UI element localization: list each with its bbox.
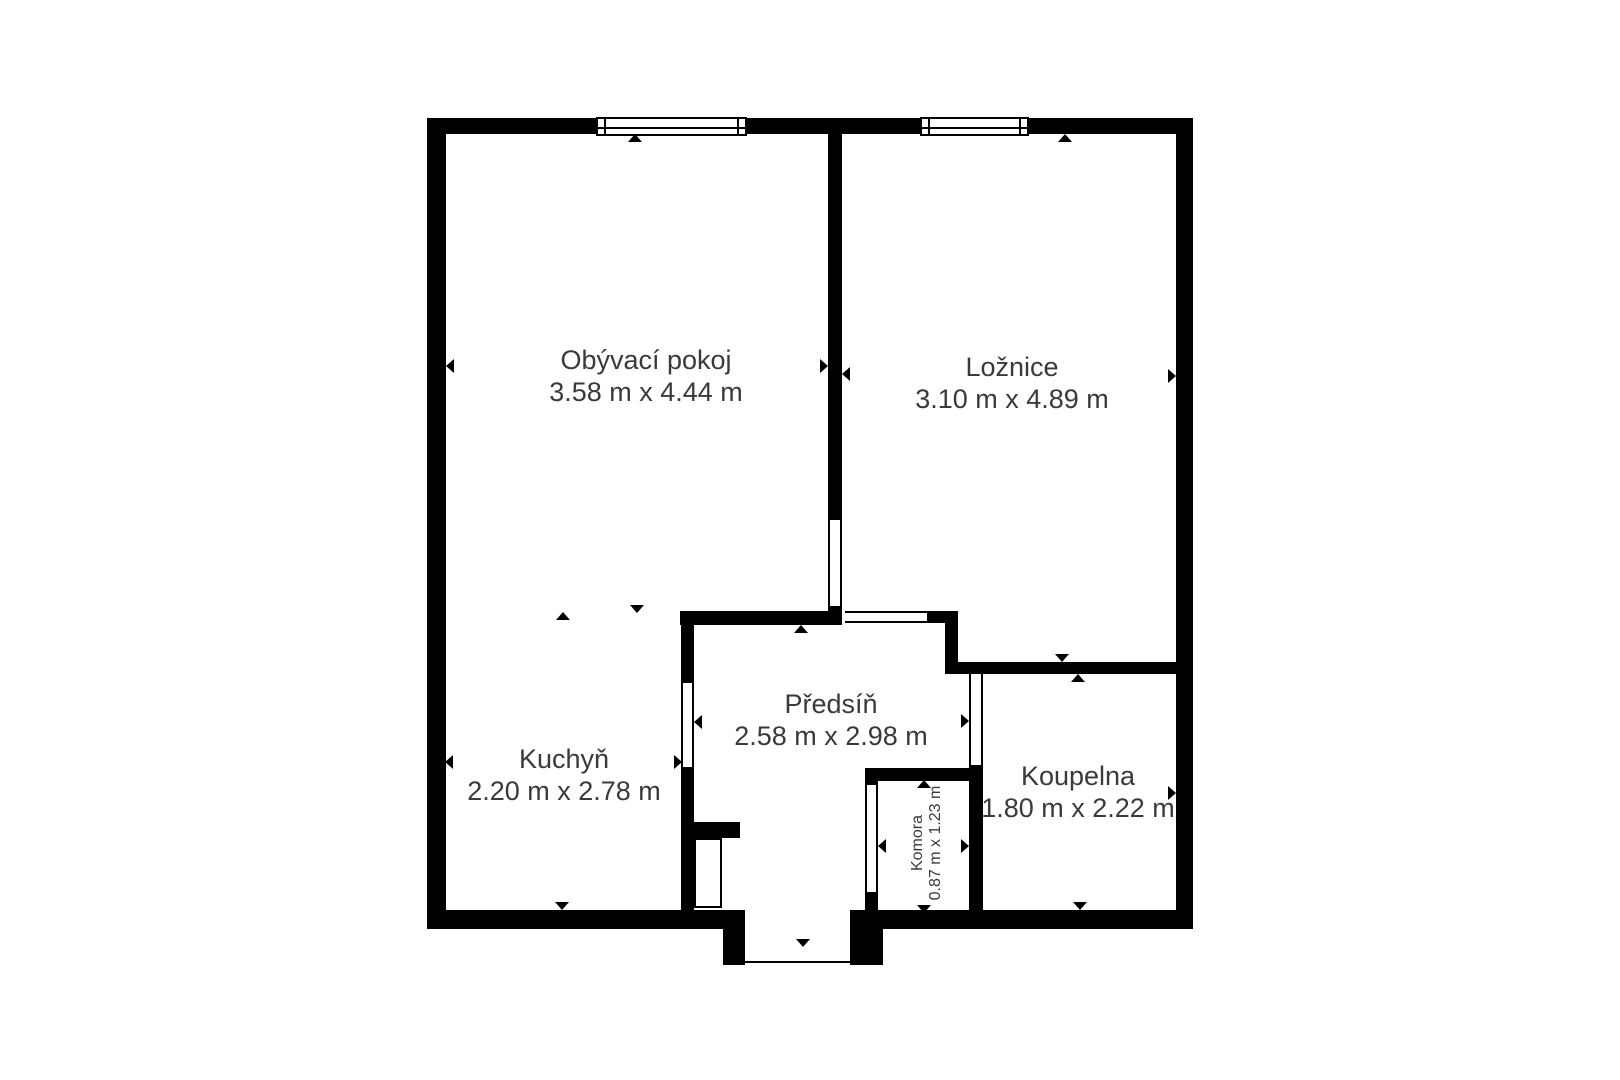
window-frame-cap bbox=[928, 119, 930, 134]
wall-right bbox=[1176, 118, 1193, 929]
wall-kitchen-stub bbox=[681, 822, 740, 838]
window-pane-line bbox=[598, 127, 745, 129]
direction-marker-icon bbox=[820, 359, 828, 373]
room-dimensions: 1.80 m x 2.22 m bbox=[981, 792, 1175, 824]
door-living-bedroom bbox=[828, 520, 842, 606]
door-bathroom bbox=[969, 674, 983, 765]
direction-marker-icon bbox=[1055, 654, 1069, 662]
room-name: Obývací pokoj bbox=[560, 345, 731, 375]
wall-top-right bbox=[1029, 118, 1193, 134]
direction-marker-icon bbox=[842, 367, 850, 381]
room-name: Kuchyň bbox=[519, 744, 609, 774]
wall-hall-left-upper bbox=[681, 611, 694, 683]
room-label-kuchyn: Kuchyň 2.20 m x 2.78 m bbox=[467, 743, 661, 807]
wall-top-left bbox=[427, 118, 596, 134]
door-hall-bedroom bbox=[845, 611, 927, 623]
direction-marker-icon bbox=[917, 905, 931, 913]
direction-marker-icon bbox=[630, 605, 644, 613]
direction-marker-icon bbox=[556, 612, 570, 620]
door-kitchen-hall bbox=[681, 683, 694, 767]
room-label-obyvaci-pokoj: Obývací pokoj 3.58 m x 4.44 m bbox=[549, 344, 743, 408]
room-label-predsin: Předsíň 2.58 m x 2.98 m bbox=[734, 688, 928, 752]
entrance-stub-left bbox=[723, 910, 745, 965]
direction-marker-icon bbox=[628, 134, 642, 142]
door-closet bbox=[865, 785, 878, 892]
room-dimensions: 3.58 m x 4.44 m bbox=[549, 376, 743, 408]
floor-plan: Obývací pokoj 3.58 m x 4.44 m Ložnice 3.… bbox=[0, 0, 1620, 1080]
window-pane-line bbox=[922, 127, 1027, 129]
room-dimensions: 2.20 m x 2.78 m bbox=[467, 775, 661, 807]
wall-closet-left-upper bbox=[865, 768, 878, 785]
direction-marker-icon bbox=[445, 755, 453, 769]
direction-marker-icon bbox=[794, 625, 808, 633]
direction-marker-icon bbox=[694, 715, 702, 729]
room-dimensions: 2.58 m x 2.98 m bbox=[734, 720, 928, 752]
room-name: Předsíň bbox=[784, 689, 877, 719]
window-frame-cap bbox=[604, 119, 606, 134]
room-dimensions: 3.10 m x 4.89 m bbox=[915, 383, 1109, 415]
entrance-stub-right bbox=[850, 910, 883, 965]
wall-living-bedroom-stub bbox=[828, 606, 842, 625]
direction-marker-icon bbox=[446, 359, 454, 373]
door-vestibule bbox=[694, 838, 722, 908]
room-label-komora: Komora 0.87 m x 1.23 m bbox=[909, 786, 945, 901]
room-dimensions: 0.87 m x 1.23 m bbox=[927, 786, 945, 901]
wall-hall-top bbox=[680, 611, 828, 625]
room-label-loznice: Ložnice 3.10 m x 4.89 m bbox=[915, 351, 1109, 415]
direction-marker-icon bbox=[555, 902, 569, 910]
wall-left bbox=[427, 118, 446, 929]
window-frame-cap bbox=[1019, 119, 1021, 134]
wall-hall-bedroom-corner bbox=[945, 623, 958, 662]
wall-top-middle bbox=[747, 118, 920, 134]
wall-closet-left-lower bbox=[865, 892, 878, 913]
wall-living-bedroom bbox=[828, 134, 842, 520]
wall-hall-left-lower bbox=[681, 767, 694, 910]
wall-bottom-left bbox=[427, 910, 723, 929]
direction-marker-icon bbox=[796, 939, 810, 947]
wall-bedroom-bathroom bbox=[945, 662, 1176, 674]
window-bedroom bbox=[920, 117, 1029, 136]
room-name: Koupelna bbox=[1021, 761, 1135, 791]
room-name: Ložnice bbox=[965, 352, 1058, 382]
direction-marker-icon bbox=[1168, 369, 1176, 383]
wall-bottom-right bbox=[865, 910, 1193, 929]
room-name: Komora bbox=[909, 815, 926, 871]
window-living-room bbox=[596, 117, 747, 136]
direction-marker-icon bbox=[1073, 902, 1087, 910]
window-frame-cap bbox=[737, 119, 739, 134]
direction-marker-icon bbox=[961, 714, 969, 728]
direction-marker-icon bbox=[878, 839, 886, 853]
direction-marker-icon bbox=[1071, 674, 1085, 682]
direction-marker-icon bbox=[1058, 134, 1072, 142]
direction-marker-icon bbox=[961, 839, 969, 853]
direction-marker-icon bbox=[674, 755, 682, 769]
wall-hall-top-right bbox=[927, 611, 958, 623]
room-label-koupelna: Koupelna 1.80 m x 2.22 m bbox=[981, 760, 1175, 824]
